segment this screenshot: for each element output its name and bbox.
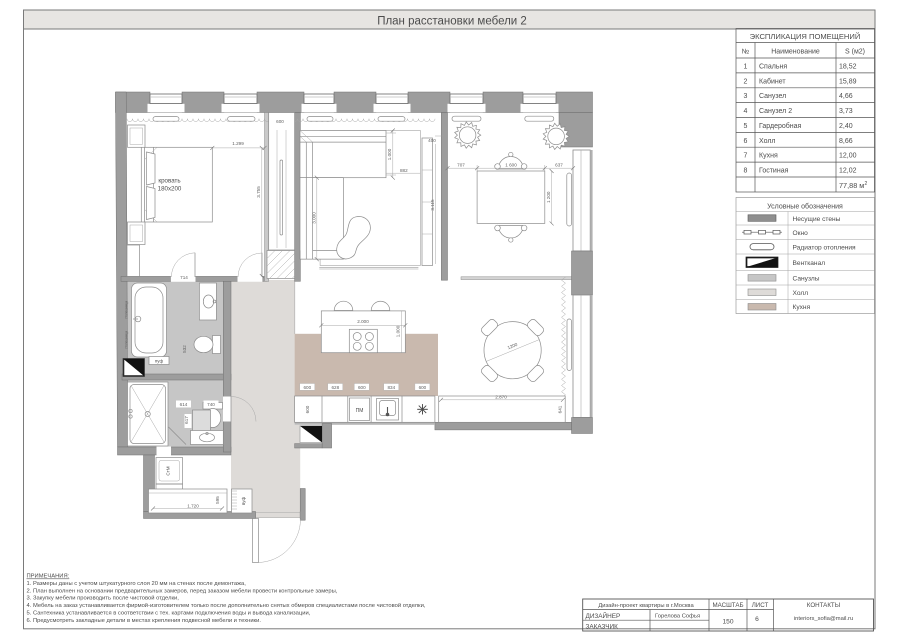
svg-text:600: 600 bbox=[303, 385, 311, 390]
svg-text:400: 400 bbox=[428, 138, 436, 143]
svg-text:4,66: 4,66 bbox=[839, 93, 853, 100]
svg-text:4. Мебель на заказ устанавлива: 4. Мебель на заказ устанавливается фирмо… bbox=[27, 602, 426, 609]
svg-text:1. Размеры даны с учетом штука: 1. Размеры даны с учетом штукатурного сл… bbox=[27, 581, 247, 587]
svg-text:Вентканал: Вентканал bbox=[793, 260, 826, 267]
svg-text:12,00: 12,00 bbox=[839, 153, 857, 160]
svg-text:707: 707 bbox=[457, 162, 465, 167]
svg-text:ЭКСПЛИКАЦИЯ ПОМЕЩЕНИЙ: ЭКСПЛИКАЦИЯ ПОМЕЩЕНИЙ bbox=[750, 32, 861, 41]
svg-text:4: 4 bbox=[744, 108, 748, 115]
svg-text:6. Предусмотреть закладные дет: 6. Предусмотреть закладные детали в мест… bbox=[27, 617, 262, 624]
svg-text:пуф: пуф bbox=[155, 359, 164, 364]
svg-text:600: 600 bbox=[419, 385, 427, 390]
svg-text:Санузлы: Санузлы bbox=[793, 275, 820, 282]
svg-text:Окно: Окно bbox=[793, 230, 809, 237]
svg-text:столешница: столешница bbox=[125, 301, 129, 319]
svg-text:532: 532 bbox=[182, 345, 187, 353]
svg-text:кровать: кровать bbox=[158, 178, 180, 185]
svg-text:ЛИСТ: ЛИСТ bbox=[752, 602, 769, 609]
svg-text:Холл: Холл bbox=[793, 290, 809, 297]
svg-text:2.000: 2.000 bbox=[357, 319, 369, 324]
svg-text:3,73: 3,73 bbox=[839, 108, 853, 115]
svg-text:Холл: Холл bbox=[759, 138, 776, 145]
svg-text:15,89: 15,89 bbox=[839, 78, 857, 85]
svg-text:18,52: 18,52 bbox=[839, 63, 857, 70]
svg-text:150: 150 bbox=[722, 619, 733, 626]
svg-text:Кухня: Кухня bbox=[793, 304, 811, 311]
svg-text:1.000: 1.000 bbox=[396, 325, 401, 337]
svg-text:1.000: 1.000 bbox=[387, 148, 392, 160]
svg-text:Гардеробная: Гардеробная bbox=[759, 122, 802, 130]
svg-text:Наименование: Наименование bbox=[771, 49, 820, 56]
svg-text:8: 8 bbox=[744, 168, 748, 175]
svg-text:12,02: 12,02 bbox=[839, 168, 857, 175]
svg-text:interiors_sofia@mail.ru: interiors_sofia@mail.ru bbox=[794, 616, 853, 622]
svg-text:3.115: 3.115 bbox=[430, 199, 435, 211]
svg-text:ПМ: ПМ bbox=[356, 408, 364, 414]
svg-text:Несущие стены: Несущие стены bbox=[793, 216, 841, 223]
svg-text:Гостиная: Гостиная bbox=[759, 168, 789, 175]
svg-text:столешница: столешница bbox=[125, 331, 129, 349]
svg-text:180х200: 180х200 bbox=[158, 186, 182, 193]
svg-text:714: 714 bbox=[180, 275, 188, 280]
svg-text:6: 6 bbox=[744, 138, 748, 145]
svg-text:МАСШТАБ: МАСШТАБ bbox=[712, 602, 743, 609]
svg-text:2.870: 2.870 bbox=[495, 394, 507, 399]
svg-text:600: 600 bbox=[276, 119, 284, 124]
svg-text:Условные обозначения: Условные обозначения bbox=[767, 203, 843, 211]
svg-text:2: 2 bbox=[865, 181, 868, 187]
svg-text:Спальня: Спальня bbox=[759, 63, 787, 70]
svg-text:СтМ: СтМ bbox=[166, 466, 171, 475]
svg-text:Санузел 2: Санузел 2 bbox=[759, 108, 792, 115]
svg-text:1 200: 1 200 bbox=[546, 191, 551, 203]
svg-text:617: 617 bbox=[184, 416, 189, 424]
svg-text:пуф: пуф bbox=[241, 497, 246, 506]
svg-text:882: 882 bbox=[400, 168, 408, 173]
svg-text:600: 600 bbox=[358, 385, 366, 390]
svg-text:628: 628 bbox=[331, 385, 339, 390]
svg-text:637: 637 bbox=[555, 162, 563, 167]
svg-text:5: 5 bbox=[744, 123, 748, 130]
svg-text:1 600: 1 600 bbox=[505, 162, 517, 167]
svg-text:3.000: 3.000 bbox=[312, 212, 317, 224]
svg-text:ЗАКАЗЧИК: ЗАКАЗЧИК bbox=[586, 624, 619, 631]
svg-text:641: 641 bbox=[558, 405, 563, 413]
svg-text:740: 740 bbox=[207, 402, 215, 407]
svg-text:77,88 м: 77,88 м bbox=[839, 181, 864, 190]
svg-text:КОНТАКТЫ: КОНТАКТЫ bbox=[807, 602, 840, 609]
svg-text:План расстановки мебели 2: План расстановки мебели 2 bbox=[377, 16, 527, 28]
svg-text:Дизайн-проект квартиры в г.Мос: Дизайн-проект квартиры в г.Москва bbox=[598, 602, 694, 609]
svg-text:1.720: 1.720 bbox=[187, 503, 199, 508]
svg-text:ПРИМЕЧАНИЯ:: ПРИМЕЧАНИЯ: bbox=[27, 574, 70, 580]
svg-text:3.755: 3.755 bbox=[256, 186, 261, 198]
svg-text:Кабинет: Кабинет bbox=[759, 77, 786, 85]
svg-text:№: № bbox=[742, 49, 750, 56]
svg-text:2,40: 2,40 bbox=[839, 123, 853, 130]
svg-text:Горелова Софья: Горелова Софья bbox=[655, 613, 700, 619]
svg-text:595: 595 bbox=[215, 496, 220, 504]
svg-text:ДИЗАЙНЕР: ДИЗАЙНЕР bbox=[586, 611, 621, 620]
svg-text:3: 3 bbox=[744, 93, 748, 100]
svg-text:614: 614 bbox=[180, 402, 188, 407]
svg-text:6: 6 bbox=[755, 616, 759, 623]
svg-text:S (м2): S (м2) bbox=[845, 49, 865, 56]
svg-text:1: 1 bbox=[744, 63, 748, 70]
svg-text:2. План выполнен на основании: 2. План выполнен на основании предварите… bbox=[27, 588, 338, 594]
svg-text:5. Сантехника устанавливается: 5. Сантехника устанавливается в соответс… bbox=[27, 610, 311, 616]
svg-text:3. Закупку мебели производить: 3. Закупку мебели производить после чист… bbox=[27, 595, 180, 602]
svg-text:7: 7 bbox=[744, 153, 748, 160]
svg-text:8,66: 8,66 bbox=[839, 138, 853, 145]
svg-text:Радиатор отопления: Радиатор отопления bbox=[793, 244, 857, 251]
svg-text:Кухня: Кухня bbox=[759, 153, 778, 160]
svg-text:2: 2 bbox=[744, 78, 748, 85]
svg-text:1.299: 1.299 bbox=[232, 141, 244, 146]
svg-text:600: 600 bbox=[305, 405, 310, 413]
svg-text:834: 834 bbox=[387, 385, 395, 390]
svg-text:Санузел: Санузел bbox=[759, 93, 786, 100]
